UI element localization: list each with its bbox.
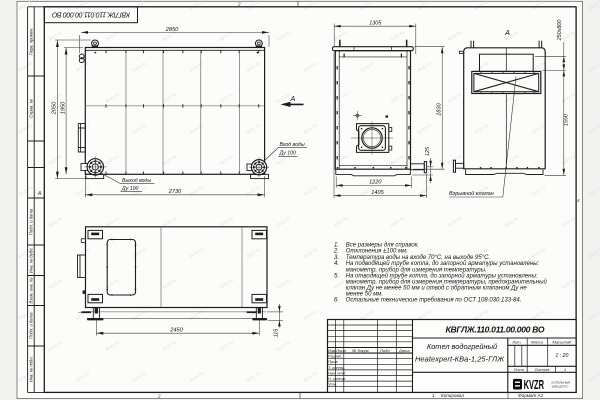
svg-text:ЗАВОД РУС: ЗАВОД РУС xyxy=(552,384,570,388)
svg-text:1220: 1220 xyxy=(369,180,382,186)
svg-text:Отклонения ±100 мм.: Отклонения ±100 мм. xyxy=(346,249,408,255)
svg-text:Формат А2: Формат А2 xyxy=(518,393,544,398)
svg-text:Н. контр.: Н. контр. xyxy=(328,376,346,381)
svg-text:2450: 2450 xyxy=(169,327,183,333)
svg-text:1: 1 xyxy=(564,367,566,372)
svg-text:2.: 2. xyxy=(333,249,339,255)
svg-text:Взам. инв. №: Взам. инв. № xyxy=(28,277,33,303)
svg-text:2: 2 xyxy=(237,2,241,7)
svg-text:KVZR: KVZR xyxy=(524,377,545,392)
svg-text:3.: 3. xyxy=(334,255,339,261)
svg-text:Котел водогрейный: Котел водогрейный xyxy=(427,342,497,351)
svg-text:Дата: Дата xyxy=(398,348,410,353)
svg-text:менее 50 мм.: менее 50 мм. xyxy=(346,292,383,298)
svg-text:Лит.: Лит. xyxy=(511,339,521,344)
svg-text:манометр, прибор для измерения: манометр, прибор для измерения температу… xyxy=(346,267,487,273)
svg-text:Ду 100: Ду 100 xyxy=(279,151,297,157)
svg-text:Ду 100: Ду 100 xyxy=(121,186,139,192)
svg-text:Пров.: Пров. xyxy=(328,359,339,364)
svg-text:А: А xyxy=(37,191,42,197)
svg-text:1405: 1405 xyxy=(371,190,384,196)
svg-text:2730: 2730 xyxy=(168,189,182,195)
svg-text:Листов: Листов xyxy=(534,367,550,372)
svg-text:Утв.: Утв. xyxy=(328,382,337,387)
svg-text:КВГЛЖ.110.011.00.000 ВО: КВГЛЖ.110.011.00.000 ВО xyxy=(51,10,130,17)
svg-text:115: 115 xyxy=(274,328,280,338)
svg-text:На подводящей трубе котла, до: На подводящей трубе котла, до запорной а… xyxy=(346,260,540,267)
svg-text:2050: 2050 xyxy=(52,101,58,115)
svg-text:Подп. и дата: Подп. и дата xyxy=(28,208,33,235)
svg-text:Разраб.: Разраб. xyxy=(328,354,342,359)
svg-text:Температура воды на входе 70°С: Температура воды на входе 70°С, на выход… xyxy=(346,255,490,261)
svg-text:клапан Ду не менее 50 мм и отв: клапан Ду не менее 50 мм и отвод с обрат… xyxy=(346,286,528,292)
svg-text:Выход воды: Выход воды xyxy=(122,178,151,184)
svg-text:Нач. отд.: Нач. отд. xyxy=(328,370,346,375)
svg-text:5.: 5. xyxy=(334,273,339,279)
svg-text:Лист: Лист xyxy=(513,367,525,372)
svg-text:Изм: Изм xyxy=(328,348,336,353)
svg-text:250х800: 250х800 xyxy=(557,20,563,42)
svg-text:Копировал: Копировал xyxy=(441,393,464,398)
svg-text:Т. контр.: Т. контр. xyxy=(328,365,345,370)
svg-text:КВГЛЖ.110.011.00.000 ВО: КВГЛЖ.110.011.00.000 ВО xyxy=(446,325,545,335)
svg-text:1950: 1950 xyxy=(60,101,66,114)
svg-text:1: 1 xyxy=(432,393,435,398)
svg-text:Масштаб: Масштаб xyxy=(553,339,572,344)
svg-text:А: А xyxy=(290,94,296,103)
svg-text:Взрывной клапан: Взрывной клапан xyxy=(449,190,494,197)
svg-text:1.: 1. xyxy=(334,243,339,249)
svg-text:Инв. № подл.: Инв. № подл. xyxy=(28,356,33,382)
svg-text:6.: 6. xyxy=(334,298,339,304)
svg-text:Heatexpert-КВа-1,25-ГЛЖ: Heatexpert-КВа-1,25-ГЛЖ xyxy=(415,354,505,363)
svg-text:Подп.: Подп. xyxy=(380,348,391,353)
svg-text:манометр, прибор для измерения: манометр, прибор для измерения температу… xyxy=(346,278,548,285)
svg-text:1305: 1305 xyxy=(369,21,382,27)
svg-text:Подп. и дата: Подп. и дата xyxy=(28,312,33,339)
svg-text:Перв. примен.: Перв. примен. xyxy=(28,28,33,56)
svg-text:125: 125 xyxy=(425,146,431,156)
svg-text:Все размеры для справок.: Все размеры для справок. xyxy=(346,243,420,249)
svg-text:1 : 20: 1 : 20 xyxy=(555,353,568,359)
svg-text:2850: 2850 xyxy=(165,27,179,33)
svg-text:2: 2 xyxy=(157,394,161,399)
svg-text:Вход воды: Вход воды xyxy=(280,142,305,148)
svg-text:1830: 1830 xyxy=(436,102,442,115)
svg-text:На отводящей трубе котла, до з: На отводящей трубе котла, до запорной ар… xyxy=(346,272,538,279)
svg-text:№ докум.: № докум. xyxy=(352,348,370,353)
svg-text:Справ. №: Справ. № xyxy=(28,99,33,118)
svg-text:Инв. № дубл.: Инв. № дубл. xyxy=(28,247,33,273)
svg-text:Масса: Масса xyxy=(531,339,544,344)
svg-text:4.: 4. xyxy=(334,261,339,267)
svg-text:Остальные технические требован: Остальные технические требования по ОСТ … xyxy=(346,298,522,304)
svg-text:1550: 1550 xyxy=(563,114,569,126)
svg-text:Лист: Лист xyxy=(335,348,347,353)
svg-text:А: А xyxy=(504,28,510,37)
